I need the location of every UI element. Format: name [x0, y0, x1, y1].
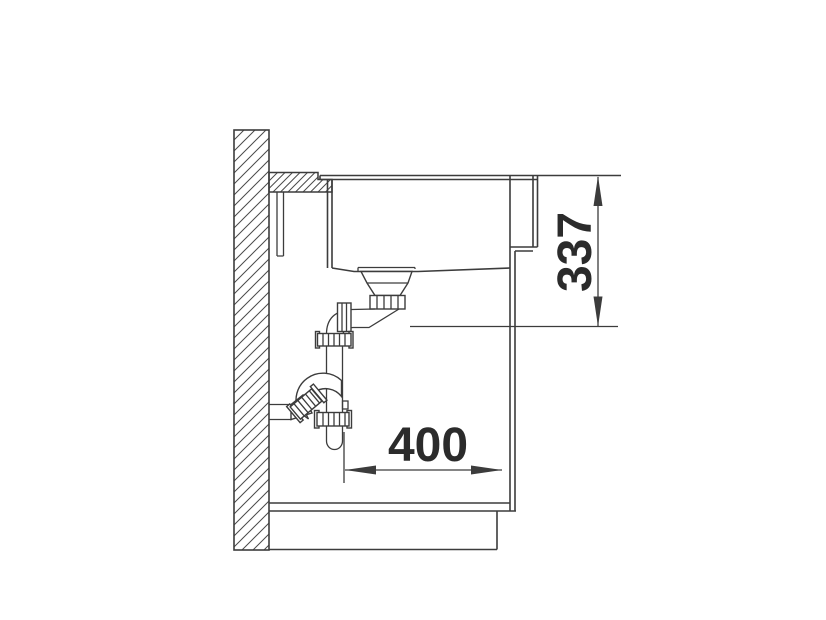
- dimension-337: 337: [549, 176, 603, 327]
- installation-diagram: 337 400: [0, 0, 826, 620]
- wall-section: [234, 130, 269, 550]
- arrow-left-icon: [345, 466, 376, 475]
- drain-elbow-pipe: [316, 303, 400, 413]
- cabinet-bottom: [269, 503, 516, 511]
- arrow-down-icon: [594, 297, 603, 327]
- arrow-right-icon: [471, 466, 502, 475]
- arrow-up-icon: [594, 176, 603, 206]
- drawing-canvas: 337 400: [0, 0, 826, 620]
- dim-400-label: 400: [388, 419, 468, 472]
- dim-337-label: 337: [549, 212, 602, 292]
- cabinet-side-panel: [510, 176, 538, 512]
- drain-strainer: [358, 268, 415, 310]
- dimension-400: 400: [344, 419, 502, 483]
- trap: [315, 411, 352, 450]
- mounting-rail: [277, 192, 284, 256]
- plinth: [269, 511, 497, 550]
